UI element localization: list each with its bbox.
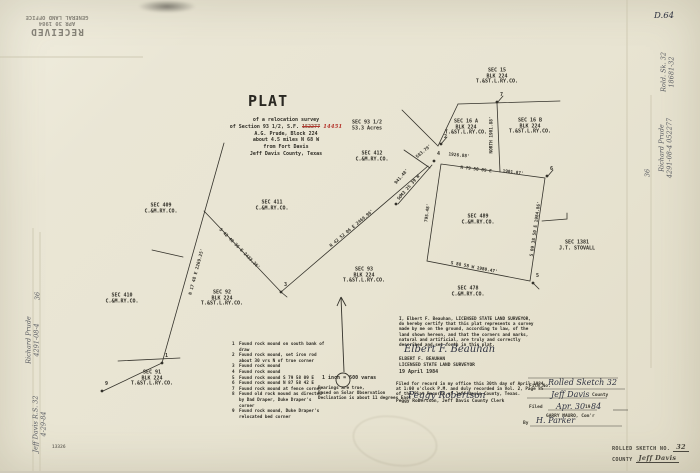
by-signature: H. Parker	[536, 416, 575, 425]
monument-legend: 1Found rock mound on south bank of draw2…	[232, 342, 328, 420]
struck-survey-number: 152277	[302, 124, 320, 130]
section-label: SEC 15BLK 224T.&ST.L.RY.CO.	[476, 69, 518, 86]
certification-date: 19 April 1984	[399, 369, 438, 375]
by-label: By	[523, 421, 528, 426]
filed-date-value: Apr. 30	[556, 402, 585, 411]
bearing-label: NORTH 1901.88'	[490, 116, 495, 153]
corner-marker: 6	[550, 166, 553, 172]
legend-item-number: 1	[232, 342, 239, 353]
corner-marker: 2	[444, 134, 447, 140]
file-no-value: Rolled Sketch 32	[548, 378, 617, 387]
description-line: from Fort Davis	[227, 144, 345, 151]
received-stamp-line1: RECEIVED	[12, 26, 102, 37]
section-label: SEC 93 1/253.3 Acres	[352, 120, 382, 131]
margin-note: 36	[644, 169, 652, 177]
legend-item-text: Found rock mound, Duke Draper's relocate…	[239, 409, 328, 420]
legend-item: 8Found old rock mound as directed by Dad…	[232, 392, 328, 409]
section-label: SEC 1381J.T. STOVALL	[559, 240, 595, 251]
description-line-survey-file: of Section 93 1/2, S.F. 152277 14451	[227, 124, 345, 131]
rolled-sketch-number: 32	[673, 443, 689, 452]
margin-note: Rold. Sk. 3218681-32	[661, 52, 676, 92]
rolled-sketch-county-value: Jeff Davis	[636, 454, 680, 463]
legend-item-text: Found old rock mound as directed by Dad …	[239, 392, 328, 409]
legend-item: 2Found rock mound, set iron rod about 30…	[232, 353, 328, 364]
corner-filing-mark: D.64	[654, 11, 674, 21]
legend-item-text: Found rock mound, set iron rod about 30 …	[239, 353, 328, 364]
ink-smudge	[138, 0, 196, 13]
section-label: SEC 412C.&M.RY.CO.	[355, 151, 388, 162]
section-label: SEC 16 ABLK 224T.&ST.L.RY.CO.	[445, 120, 487, 137]
rolled-sketch-stamp: ROLLED SKETCH NO. 32 COUNTY Jeff Davis	[612, 443, 689, 463]
section-label: SEC 489C.&M.RY.CO.	[461, 214, 494, 225]
description-line: A.G. Prude, Block 224	[227, 131, 345, 138]
margin-note: Jeff Davis R.S. 324-29-84	[33, 396, 48, 453]
red-survey-number: 14451	[323, 124, 342, 130]
received-stamp-office: GENERAL LAND OFFICE	[12, 14, 102, 20]
plat-description: of a relocation survey of Section 93 1/2…	[227, 117, 345, 158]
year-prefix: 19	[585, 405, 590, 410]
corner-marker: 7	[500, 92, 503, 98]
corner-marker: 3	[284, 282, 287, 288]
corner-marker: 4	[437, 151, 440, 157]
section-label: SEC 411C.&M.RY.CO.	[255, 200, 288, 211]
surveyor-name: ELBERT F. BEAUHAN	[399, 357, 445, 362]
surveyor-title: LICENSED STATE LAND SURVEYOR	[399, 363, 475, 368]
legend-item: 1Found rock mound on south bank of draw	[232, 342, 328, 353]
corner-marker: 5	[536, 273, 539, 279]
page-title: PLAT	[248, 92, 288, 110]
margin-note: 36	[34, 292, 42, 300]
plat-sheet: RECEIVED APR 30 1984 GENERAL LAND OFFICE…	[0, 0, 700, 471]
corner-marker: 9	[105, 381, 108, 387]
received-stamp: RECEIVED APR 30 1984 GENERAL LAND OFFICE	[12, 14, 102, 37]
legend-item-text: Found rock mound on south bank of draw	[239, 342, 328, 353]
margin-note: Richard Prude4291-08-4 052277	[659, 118, 674, 178]
rolled-sketch-label: ROLLED SKETCH NO.	[612, 446, 670, 452]
clerk-name-line: Peggy Robertson, Jeff Davis County Clerk	[396, 399, 504, 404]
section-label: SEC 92BLK 224T.&ST.L.RY.CO.	[201, 291, 243, 308]
section-label: SEC 91BLK 224T.&ST.L.RY.CO.	[131, 371, 173, 388]
year-value: 84	[591, 402, 601, 411]
small-file-number: 13326	[52, 445, 66, 450]
section-label: SEC 93BLK 224T.&ST.L.RY.CO.	[343, 268, 385, 285]
county-label: County	[592, 393, 608, 398]
legend-item-number: 9	[232, 409, 239, 420]
section-label: SEC 16 BBLK 224T.&ST.L.RY.CO.	[509, 119, 551, 136]
legend-item-number: 8	[232, 392, 239, 409]
corner-marker: 1	[165, 353, 168, 359]
county-value: Jeff Davis	[551, 390, 590, 399]
section-label: SEC 478C.&M.RY.CO.	[451, 286, 484, 297]
margin-note: Richard Prude4291-08-4	[26, 316, 41, 364]
description-line: about 4.5 miles N 68 W	[227, 137, 345, 144]
corner-marker: 8	[399, 194, 402, 200]
description-line: Jeff Davis County, Texas	[227, 151, 345, 158]
section-label: SEC 410C.&M.RY.CO.	[105, 293, 138, 304]
section-label: SEC 409C.&M.RY.CO.	[144, 203, 177, 214]
legend-item-number: 2	[232, 353, 239, 364]
surveyor-signature: Elbert F. Beauhan	[404, 344, 495, 355]
north-arrow-icon	[336, 297, 350, 387]
legend-item: 9Found rock mound, Duke Draper's relocat…	[232, 409, 328, 420]
scale-note: 1 inch = 500 varas	[322, 375, 376, 381]
filed-label: Filed	[529, 405, 543, 410]
description-line: of a relocation survey	[227, 117, 345, 124]
rolled-sketch-county-label: COUNTY	[612, 457, 633, 463]
received-stamp-date: APR 30 1984	[12, 20, 102, 26]
